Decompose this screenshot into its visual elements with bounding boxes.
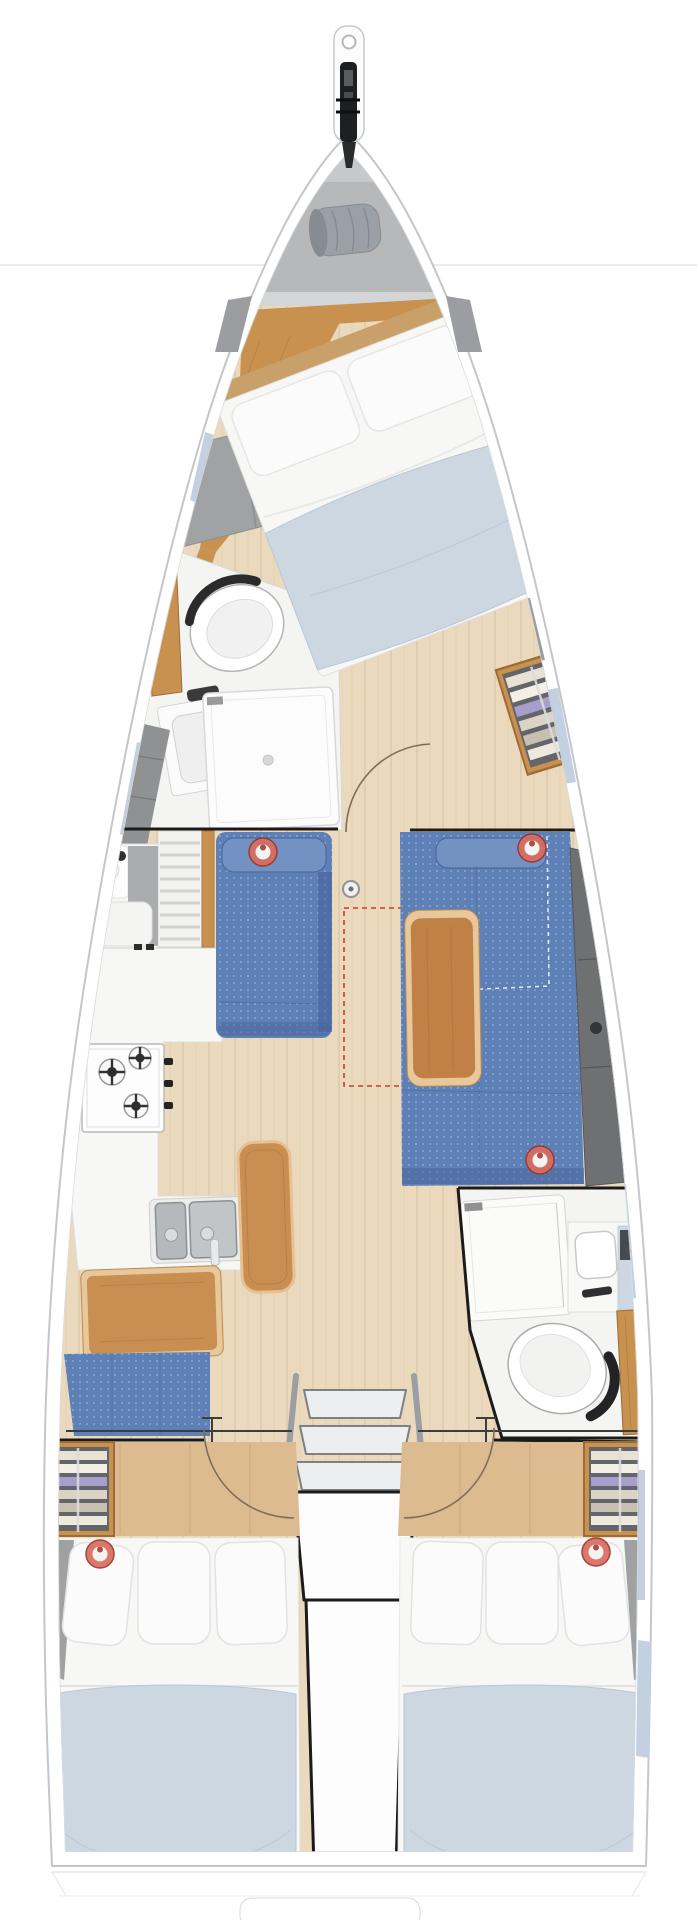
duvet [404, 1685, 642, 1865]
galley-double-sink [149, 1196, 245, 1267]
center-divider [306, 1600, 404, 1868]
yacht-floor-plan: Sailing yacht interior layout plan - top… [0, 0, 697, 1920]
sail-bag [307, 202, 383, 257]
engine-box [294, 1492, 416, 1600]
louvered-locker [158, 831, 214, 947]
red-ring-marker [526, 1146, 554, 1174]
red-ring-marker [86, 1540, 114, 1568]
red-ring-marker [518, 834, 546, 862]
shower-drain [263, 755, 274, 766]
chart-table [81, 1266, 224, 1361]
pillow [214, 1541, 288, 1645]
pillow [486, 1542, 558, 1644]
mast-post [343, 881, 359, 897]
duvet [54, 1685, 296, 1865]
forward-head-counter-shade [100, 566, 142, 706]
stern-platform-outlines [52, 1872, 646, 1920]
forward-head-shower [203, 687, 340, 832]
aft-berth-starboard [398, 1538, 652, 1868]
red-ring-marker [249, 838, 277, 866]
saloon-table [404, 909, 481, 1086]
pillow [410, 1541, 484, 1645]
galley-stove-3-burner [82, 1044, 173, 1132]
port-settee [216, 832, 332, 1038]
red-ring-marker [582, 1538, 610, 1566]
nav-seat [64, 1352, 210, 1436]
aft-berth-port [46, 1538, 300, 1868]
main-bulkhead [96, 829, 580, 830]
shower-mixer [207, 696, 223, 705]
locker-wood-trim [202, 831, 214, 947]
pillow [138, 1542, 210, 1644]
nav-bench [237, 1141, 294, 1293]
aft-head-shower [460, 1195, 572, 1322]
